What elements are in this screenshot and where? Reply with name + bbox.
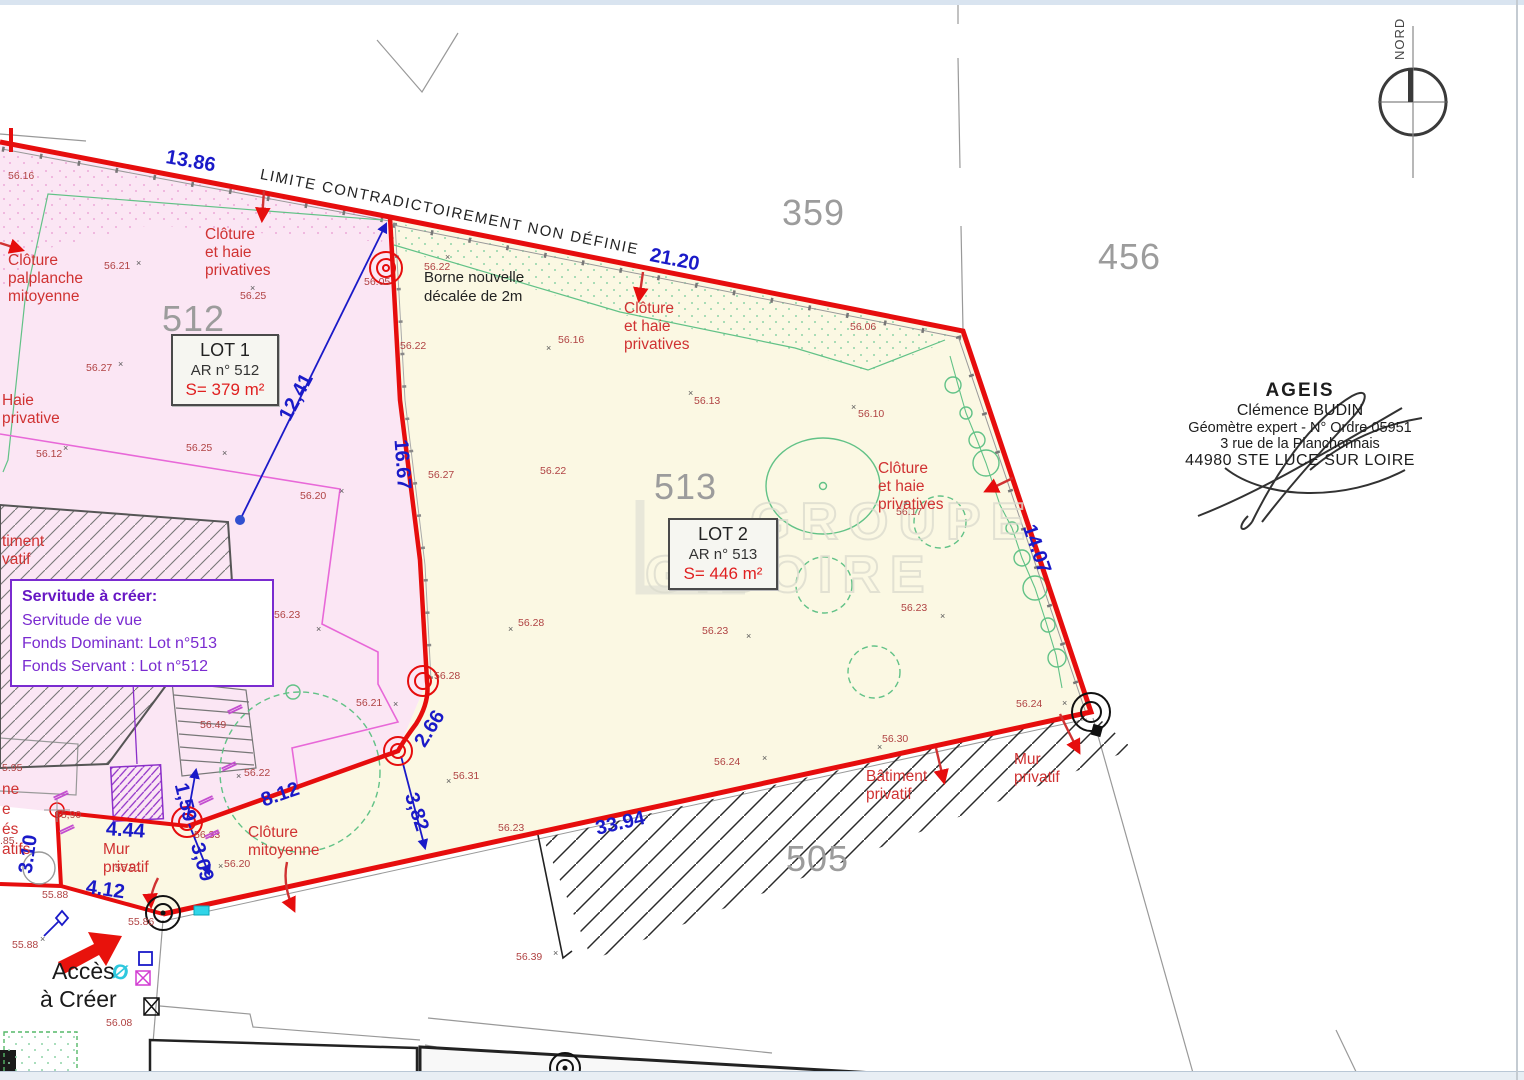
spot-elevation: 56.49 [200, 719, 226, 731]
servitude-box: Servitude à créer: Servitude de vue Fond… [10, 579, 274, 687]
spot-elevation: 56.10 [858, 408, 884, 420]
stamp-title: Géomètre expert - N° Ordre 05951 [1150, 420, 1450, 436]
lot2-ref: AR n° 513 [676, 546, 770, 563]
spot-elevation: 56.27 [428, 469, 454, 481]
parcel-number: 456 [1098, 236, 1161, 278]
lot2-box: LOT 2 AR n° 513 S= 446 m² [668, 518, 778, 590]
feature-label: Haie privative [2, 392, 60, 428]
lot1-area: S= 379 m² [179, 380, 271, 400]
point-marker: × [136, 258, 141, 268]
spot-elevation: 56.28 [518, 617, 544, 629]
new-borne-note: Borne nouvelle décalée de 2m [424, 268, 524, 306]
spot-elevation: 56.22 [400, 340, 426, 352]
page-edge-top [0, 0, 1524, 5]
feature-label: Mur privatif [1014, 751, 1060, 787]
black-x-box [144, 998, 159, 1015]
dimension-label: 16.67 [389, 439, 415, 491]
spot-elevation: 56.24 [714, 756, 740, 768]
lot1-title: LOT 1 [179, 340, 271, 361]
spot-elevation: 56.12 [36, 448, 62, 460]
feature-label: Bâtiment privatif [866, 768, 927, 804]
point-marker: × [940, 611, 945, 621]
spot-elevation: 56.22 [540, 465, 566, 477]
point-marker: × [508, 624, 513, 634]
servitude-line3: Fonds Servant : Lot n°512 [22, 655, 262, 678]
spot-elevation: 56.20 [224, 858, 250, 870]
feature-label: Clôture et haie privatives [205, 226, 270, 280]
access-label-line1: Accès [52, 958, 115, 985]
point-marker: × [236, 771, 241, 781]
point-marker: × [877, 742, 882, 752]
spot-elevation: 56.21 [356, 697, 382, 709]
spot-elevation: 56.23 [901, 602, 927, 614]
spot-elevation: 55.86 [128, 916, 154, 928]
stamp-company: AGEIS [1150, 380, 1450, 402]
spot-elevation: 56.08 [106, 1017, 132, 1029]
page-edge-right [1516, 0, 1518, 1080]
point-marker: × [218, 861, 223, 871]
north-label: NORD [1392, 18, 1407, 60]
spot-elevation: 56.21 [104, 260, 130, 272]
spot-elevation: 56.27 [86, 362, 112, 374]
spot-elevation: 56.25 [186, 442, 212, 454]
point-marker: × [762, 753, 767, 763]
spot-elevation: 55.88 [42, 889, 68, 901]
point-marker: × [316, 624, 321, 634]
point-marker: × [445, 252, 450, 262]
lot1-box: LOT 1 AR n° 512 S= 379 m² [171, 334, 279, 406]
parcel-number: 505 [786, 838, 849, 880]
feature-label: timent vatif [2, 533, 44, 569]
spot-elevation: 55.88 [12, 939, 38, 951]
point-marker: × [1062, 698, 1067, 708]
surveyor-stamp: AGEIS Clémence BUDIN Géomètre expert - N… [1150, 380, 1450, 470]
magenta-x-marker [136, 971, 150, 985]
spot-elevation: 56.06 [850, 321, 876, 333]
lot2-area: S= 446 m² [676, 564, 770, 584]
spot-elevation: 56.39 [516, 951, 542, 963]
parcel-number: 359 [782, 192, 845, 234]
point-marker: × [63, 443, 68, 453]
lot1-ref: AR n° 512 [179, 362, 271, 379]
stamp-address: 3 rue de la Planchonnais [1150, 436, 1450, 452]
spot-elevation: 56.30 [882, 733, 908, 745]
point-marker: × [688, 388, 693, 398]
feature-label: e [2, 801, 11, 819]
page-edge-bottom [0, 1071, 1524, 1080]
spot-elevation: 56.16 [8, 170, 34, 182]
feature-label: Clôture palplanche mitoyenne [8, 252, 83, 306]
point-marker: × [851, 402, 856, 412]
feature-label: atifs [2, 841, 30, 859]
spot-elevation: 56.05 [364, 276, 390, 288]
feature-label: Clôture et haie privatives [624, 300, 689, 354]
point-marker: × [250, 283, 255, 293]
cyan-marker [194, 906, 209, 915]
spot-elevation: 56.28 [434, 670, 460, 682]
spot-elevation: 56.23 [702, 625, 728, 637]
spot-elevation: 56.20 [300, 490, 326, 502]
feature-label: Mur privatif [103, 841, 149, 877]
north-arrow [1378, 26, 1448, 178]
point-marker: × [446, 776, 451, 786]
servitude-line1: Servitude de vue [22, 609, 262, 632]
dimension-label: 4.44 [105, 818, 145, 844]
feature-label: Clôture mitoyenne [248, 824, 320, 860]
stamp-city: 44980 STE LUCE SUR LOIRE [1150, 452, 1450, 470]
spot-elevation: 56.31 [453, 770, 479, 782]
feature-label: ne [2, 781, 19, 799]
spot-elevation: 55,90 [55, 809, 81, 821]
spot-elevation: 56.22 [244, 767, 270, 779]
feature-label: Clôture et haie privatives [878, 460, 943, 514]
spot-elevation: 56.16 [558, 334, 584, 346]
point-marker: × [339, 486, 344, 496]
spot-elevation: 56.23 [498, 822, 524, 834]
plan-canvas: GROUPE GIBOIRE 359456512513505 56.1656.2… [0, 0, 1524, 1080]
spot-elevation: 5.95 [2, 762, 22, 774]
point-marker: × [393, 699, 398, 709]
stamp-name: Clémence BUDIN [1150, 402, 1450, 420]
point-marker: × [222, 448, 227, 458]
point-marker: × [746, 631, 751, 641]
point-marker: × [553, 948, 558, 958]
point-marker: × [40, 934, 45, 944]
spot-elevation: 56.24 [1016, 698, 1042, 710]
lot2-title: LOT 2 [676, 524, 770, 545]
parcel-number: 513 [654, 466, 717, 508]
access-label-line2: à Créer [40, 986, 117, 1013]
point-marker: × [118, 359, 123, 369]
point-marker: × [546, 343, 551, 353]
spot-elevation: 56.13 [694, 395, 720, 407]
spot-elevation: 56.23 [274, 609, 300, 621]
servitude-title: Servitude à créer: [22, 588, 262, 606]
feature-label: és [2, 821, 18, 839]
servitude-line2: Fonds Dominant: Lot n°513 [22, 632, 262, 655]
